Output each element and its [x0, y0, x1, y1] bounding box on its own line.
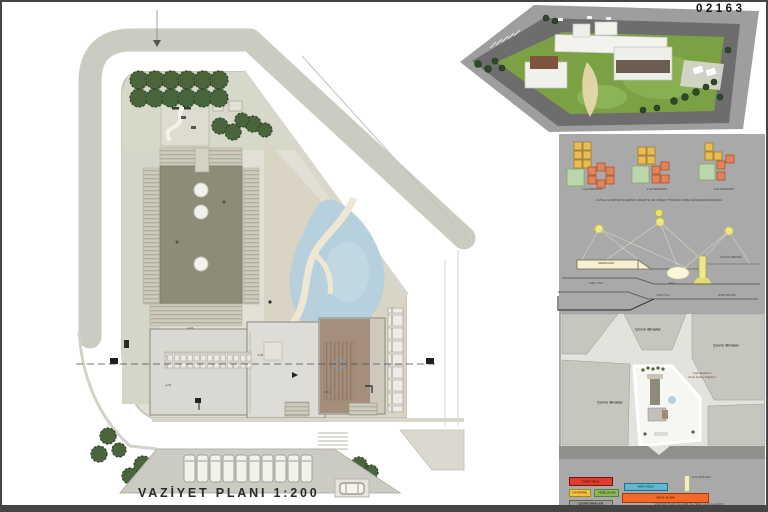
context-label-top: Çevre Binalar: [622, 327, 674, 332]
legend-chip-label: ÇEVRE BİNALAR: [579, 503, 604, 506]
parking-stalls-column: [388, 308, 403, 412]
board-artwork: [2, 2, 768, 512]
section-label-pedestrian: YAYA YOLU: [648, 294, 678, 297]
context-diagram: [559, 314, 765, 459]
street-car: [335, 479, 369, 497]
section-label-courtyard: AVLU: [657, 282, 687, 285]
legend-chip-label: OKUL ALANI: [656, 497, 674, 500]
aerial-render: [460, 5, 759, 132]
sidewalk-corner: [400, 430, 464, 470]
legend-chip-label: OTOPARK: [573, 492, 588, 495]
section-label-vehicle-road: TAŞIT YOLU: [580, 282, 612, 285]
legend-chip-surrounding: ÇEVRE BİNALAR: [569, 500, 613, 508]
entry-number: 02163: [696, 3, 766, 15]
legend-entry-axis-label: ANA GİRİŞ AKSI: [692, 476, 764, 479]
legend-chip-pedestrian: YAYA YOLU: [624, 483, 668, 491]
spot-level: +0.00: [178, 327, 202, 330]
building-footprint: [150, 318, 385, 418]
massing-alt-3-label: 3.ALTERNATİF: [701, 188, 747, 192]
legend-caption: VAZİYET PLANI ULAŞIM VE YEŞİL ALAN LEJAN…: [616, 503, 762, 507]
context-label-left: Çevre Binalar: [584, 400, 636, 405]
spot-level: -1.35: [314, 391, 338, 394]
legend-chip-parking: OTOPARK: [569, 489, 591, 497]
steps: [318, 433, 348, 449]
context-label-right: Çevre Binalar: [698, 343, 754, 348]
legend-chip-label: YEŞİL ALAN: [598, 492, 616, 495]
plan-title: VAZİYET PLANI 1:200: [138, 486, 319, 500]
presentation-board: 02163 VAZİYET PLANI 1:200 +0.00 -0.45 +1…: [0, 0, 768, 512]
legend-entry-axis-bar: [684, 475, 690, 492]
context-green-note: Yeşil Alanların Arazi İçinde Dağılımı: [672, 372, 732, 380]
legend-chip-vehicle-road: TAŞIT YOLU: [569, 477, 613, 486]
site-plan: [76, 10, 470, 497]
section-label-classrooms: DERSLİKLER: [586, 262, 626, 265]
render-pavilions: [680, 60, 724, 90]
spot-level: +1.50: [156, 384, 180, 387]
legend-chip-school-area: OKUL ALANI: [622, 493, 709, 503]
plaza: [143, 148, 259, 326]
section-label-gym: SPOR SALONU: [704, 294, 750, 297]
legend-chip-label: TAŞIT YOLU: [582, 480, 600, 483]
massing-alt-2-label: 2.ALTERNATİF: [634, 188, 680, 192]
spot-level: -0.45: [248, 354, 272, 357]
massing-alt-1-label: 1.ALTERNATİF: [568, 188, 616, 192]
legend-chip-green-area: YEŞİL ALAN: [594, 489, 619, 497]
massing-caption: KÜTLE ALTERNATİFLERİNİN ARAZİYE VE GÜNEŞ…: [576, 199, 742, 203]
section-label-culture: KÜLTÜR MERKEZİ: [705, 256, 757, 259]
sun-dot-icon: [656, 210, 663, 217]
legend-chip-label: YAYA YOLU: [638, 486, 655, 489]
